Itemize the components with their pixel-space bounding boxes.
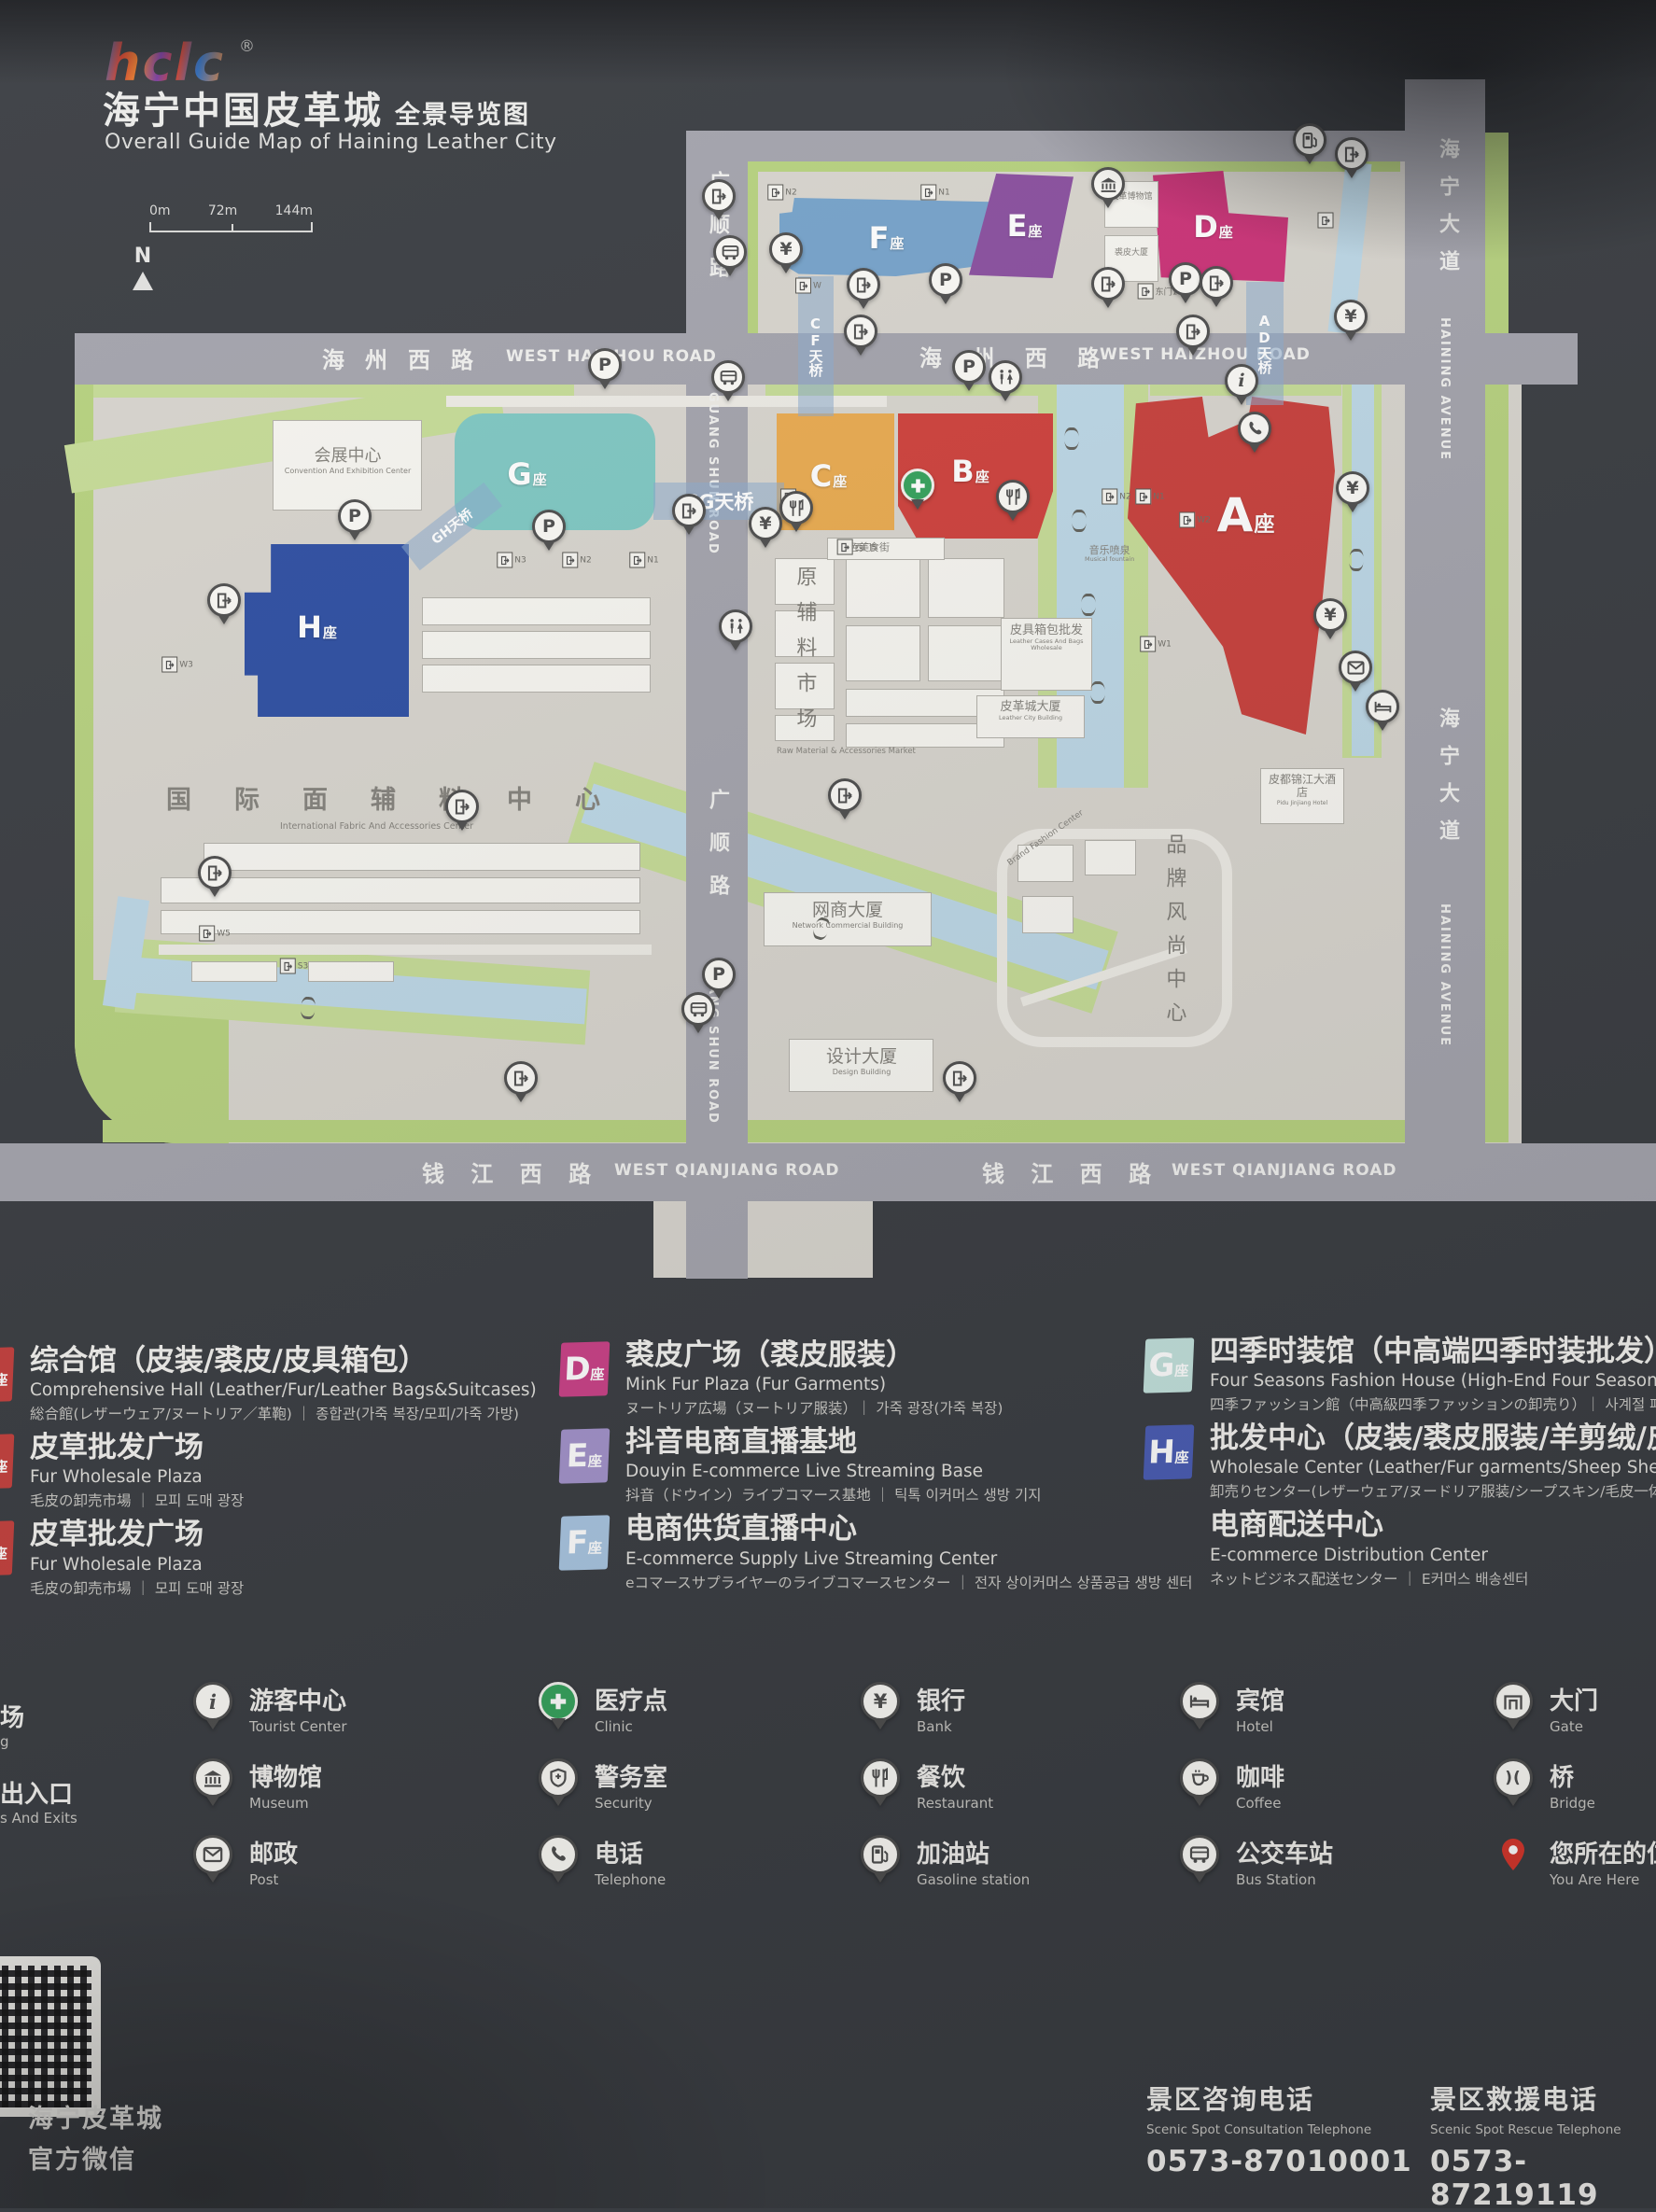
map-scale-bar: 0m 72m 144m (149, 203, 313, 232)
gate-marker: W (795, 278, 821, 294)
bus-icon (713, 235, 747, 269)
exit-icon (837, 539, 853, 555)
gate-code: W2 (1197, 515, 1211, 525)
legend-row: A座综合馆（皮装/裘皮/皮具箱包）Comprehensive Hall (Lea… (0, 1344, 549, 1423)
legend-title: 四季时装馆（中高端四季时装批发） (1210, 1335, 1656, 1369)
info-icon: i (1225, 364, 1258, 398)
facility-label-zh: 咖啡 (1236, 1758, 1284, 1793)
gate-marker: W1 (1140, 637, 1172, 652)
bridge-tick (1091, 681, 1105, 704)
medical-icon (537, 1682, 580, 1737)
rescue-phone-block: 景区救援电话 Scenic Spot Rescue Telephone 0573… (1430, 2079, 1656, 2212)
facility-label-zh: 医疗点 (595, 1682, 667, 1716)
exit-pin (1335, 137, 1368, 185)
parking-icon: P (338, 499, 372, 533)
hotel-icon (1178, 1682, 1221, 1737)
exit-pin (943, 1061, 976, 1109)
facility-label-zh: 博物馆 (249, 1758, 322, 1793)
exit-icon (1335, 137, 1368, 171)
facilities-column-3: ¥银行Bank餐饮Restaurant加油站Gasoline station (859, 1682, 1030, 1911)
label-guangshun-en-1: GUANG SHUN ROAD (706, 392, 720, 555)
facility-partial-item: 出入口s And Exits (0, 1775, 77, 1827)
bank-pin: ¥ (749, 507, 782, 554)
exit-pin (828, 778, 862, 826)
market-block (846, 558, 920, 618)
market-block (846, 625, 920, 681)
wechat-qr-code (0, 1956, 101, 2117)
wc-icon (719, 609, 752, 643)
museum-pin (1091, 167, 1125, 215)
facility-item-coffee: 咖啡Coffee (1178, 1758, 1333, 1835)
gas-pin (1293, 123, 1326, 171)
gate-marker: S3 (280, 959, 308, 974)
legend-title-jp-kr: ヌートリア広場（ヌートリア服装）｜ 가죽 광장(가죽 복장) (625, 1397, 1003, 1418)
scale-tick: 144m (275, 203, 313, 218)
white-row (422, 665, 651, 693)
registered-mark: ® (239, 37, 255, 56)
gate-code: N3 (514, 555, 526, 565)
bank-icon: ¥ (769, 232, 803, 266)
facility-item-mail: 邮政Post (191, 1835, 347, 1911)
bank-icon: ¥ (1336, 471, 1369, 505)
bank-icon: ¥ (859, 1682, 902, 1737)
label-qianjiang-left-zh: 钱 江 西 路 (422, 1155, 600, 1188)
facility-label-zh: 银行 (917, 1682, 965, 1716)
legend-badge: A座 (0, 1347, 14, 1402)
label-building-F: F座 (869, 220, 905, 256)
mail-icon (191, 1835, 234, 1890)
exit-icon (1200, 266, 1233, 300)
hotel-pin (1366, 690, 1399, 737)
gate-code: N2 (1119, 492, 1130, 501)
exit-icon (1091, 267, 1125, 301)
legend-title-en: Fur Wholesale Plaza (30, 1467, 244, 1487)
bridge-tick (1349, 549, 1364, 572)
facility-label-en: You Are Here (1550, 1871, 1656, 1888)
facility-label-en: Post (249, 1871, 298, 1888)
green-topleft (747, 161, 758, 333)
label-fur-building: 裘皮大厦 (1107, 248, 1156, 259)
gate-code: W1 (1158, 639, 1172, 649)
bridge-tick (1082, 594, 1096, 616)
consultation-phone-subtitle: Scenic Spot Consultation Telephone (1146, 2122, 1412, 2137)
facility-item-here: 您所在的位置You Are Here (1492, 1835, 1656, 1911)
label-design: 设计大厦Design Building (801, 1046, 922, 1076)
wechat-label-2: 官方微信 (28, 2139, 136, 2176)
page-title: 海宁中国皮革城全景导览图 (103, 80, 530, 134)
wc-pin (719, 609, 752, 657)
legend-title-jp-kr: 四季ファッション館（中高級四季ファッションの卸売り）｜ 사계절 패션관(중고급 … (1210, 1393, 1656, 1414)
market-block (928, 625, 1004, 681)
wc-pin (989, 360, 1022, 408)
facility-item-medical: 医疗点Clinic (537, 1682, 667, 1758)
gate-code: N1 (1153, 492, 1164, 501)
medical-pin (901, 469, 934, 516)
facility-label-en: Coffee (1236, 1795, 1284, 1812)
label-building-A: A座 (1217, 488, 1276, 542)
medical-icon (901, 469, 934, 502)
gate-marker: W5 (199, 926, 231, 942)
facility-label-en: Bus Station (1236, 1871, 1333, 1888)
fabric-stub (308, 961, 394, 982)
legend-title: 抖音电商直播基地 (625, 1425, 1041, 1460)
page-title-suffix: 全景导览图 (395, 101, 530, 130)
scale-tick: 72m (208, 203, 237, 218)
facility-label-zh: 游客中心 (249, 1682, 347, 1716)
facility-label-en: Gasoline station (917, 1871, 1030, 1888)
label-qianjiang-left-en: WEST QIANJIANG ROAD (614, 1161, 840, 1180)
facility-item-phone: 电话Telephone (537, 1835, 667, 1911)
gate-marker: N2 (1102, 489, 1130, 505)
exit-icon (1140, 637, 1156, 652)
facility-item-bus: 公交车站Bus Station (1178, 1835, 1333, 1911)
gate-code: S3 (298, 961, 308, 971)
exit-pin (198, 856, 232, 903)
gas-icon (1293, 123, 1326, 157)
exit-icon (1318, 213, 1334, 229)
exit-icon (504, 1061, 538, 1095)
gate-code: 西门5 (855, 541, 877, 553)
label-bags: 皮具箱包批发Leather Cases And Bags Wholesale (1006, 623, 1087, 652)
facility-label-zh: 宾馆 (1236, 1682, 1284, 1716)
museum-icon (1091, 167, 1125, 201)
parking-pin: P (929, 263, 962, 311)
facility-item-museum: 博物馆Museum (191, 1758, 347, 1835)
exit-pin (1091, 267, 1125, 315)
label-hotel: 皮都锦江大酒店Pidu Jinjiang Hotel (1264, 773, 1340, 806)
facility-item-hotel: 宾馆Hotel (1178, 1682, 1333, 1758)
legend-row: G座四季时装馆（中高端四季时装批发）Four Seasons Fashion H… (1144, 1335, 1656, 1414)
phone-icon (1238, 412, 1271, 445)
bus-icon (1178, 1835, 1221, 1890)
legend-badge: F座 (559, 1516, 610, 1571)
label-haining-zh-1: 海宁大道 (1432, 138, 1462, 287)
legend-row: B座皮草批发广场Fur Wholesale Plaza毛皮の卸売市場 ｜ 모피 … (0, 1431, 549, 1510)
security-icon (537, 1758, 580, 1813)
legend-row: C座皮草批发广场Fur Wholesale Plaza毛皮の卸売市場 ｜ 모피 … (0, 1518, 549, 1597)
facility-label-en: Tourist Center (249, 1718, 347, 1735)
label-qianjiang-right-zh: 钱 江 西 路 (982, 1155, 1160, 1188)
facility-item-tourist: i游客中心Tourist Center (191, 1682, 347, 1758)
rescue-phone-subtitle: Scenic Spot Rescue Telephone (1430, 2122, 1656, 2137)
label-haizhou-left-zh: 海州西路 (322, 342, 494, 374)
label-market-zh: 原辅料市场 (792, 566, 816, 743)
rescue-phone-number: 0573-87219119 (1430, 2145, 1656, 2212)
bus-pin (681, 992, 715, 1040)
bank-icon: ¥ (1334, 300, 1368, 333)
legend-title-en: Four Seasons Fashion House (High-End Fou… (1210, 1371, 1656, 1391)
parking-icon: P (952, 350, 986, 384)
facility-item-bank: ¥银行Bank (859, 1682, 1030, 1758)
parking-pin: P (338, 499, 372, 547)
gate-code: W3 (179, 660, 193, 669)
parking-icon: P (929, 263, 962, 297)
fabric-stub (191, 961, 277, 982)
label-building-G: G座 (507, 456, 547, 492)
green-bottom (103, 1120, 1438, 1142)
facilities-column-1: i游客中心Tourist Center博物馆Museum邮政Post (191, 1682, 347, 1911)
exit-pin (207, 583, 241, 631)
parking-icon: P (532, 510, 566, 543)
legend-title: 皮草批发广场 (30, 1518, 244, 1552)
phone-pin (1238, 412, 1271, 459)
exit-icon (828, 778, 862, 812)
label-cf-bridge: CF天桥 (807, 315, 826, 377)
legend-badge: C座 (0, 1521, 14, 1576)
gate-marker (1318, 213, 1334, 229)
bus-icon (711, 360, 745, 394)
legend-title: 皮草批发广场 (30, 1431, 244, 1465)
legend-row: 电商配送中心E-commerce Distribution Centerネットビ… (1144, 1508, 1656, 1588)
legend-title-en: Fur Wholesale Plaza (30, 1555, 244, 1575)
gate-code: N2 (785, 188, 796, 197)
parking-icon: P (702, 958, 736, 991)
exit-pin (844, 315, 877, 362)
exit-icon (280, 959, 296, 974)
label-guangshun-zh-2: 广顺路 (702, 789, 732, 917)
legend-badge: E座 (559, 1429, 610, 1484)
legend-title-en: Comprehensive Hall (Leather/Fur/Leather … (30, 1380, 537, 1400)
facility-label-en: Museum (249, 1795, 322, 1812)
exit-icon (1176, 315, 1210, 348)
bank-pin: ¥ (769, 232, 803, 280)
north-arrow: N (133, 245, 153, 290)
gate-marker: W3 (161, 657, 193, 673)
legend-title-jp-kr: ネットビジネス配送センター ｜ E커머스 배송센터 (1210, 1568, 1528, 1589)
legend-title-en: Wholesale Center (Leather/Fur garments/S… (1210, 1458, 1656, 1477)
parking-pin: P (1169, 262, 1202, 310)
facility-item-bridge: )(桥Bridge (1492, 1758, 1656, 1835)
label-qianjiang-right-en: WEST QIANJIANG ROAD (1172, 1161, 1397, 1180)
wechat-label-1: 海宁皮革城 (28, 2098, 163, 2135)
facility-label-zh: 电话 (595, 1835, 666, 1869)
exit-icon (1138, 284, 1154, 300)
exit-icon (943, 1061, 976, 1095)
legend-title-en: Mink Fur Plaza (Fur Garments) (625, 1375, 1003, 1394)
facility-label-en: Clinic (595, 1718, 667, 1735)
bank-icon: ¥ (1313, 598, 1347, 632)
gate-marker: N2 (767, 185, 796, 201)
exit-icon (767, 185, 783, 201)
footbridge-cf: CF天桥 (798, 276, 834, 416)
exit-pin (1200, 266, 1233, 314)
bus-icon (681, 992, 715, 1026)
facility-item-gas: 加油站Gasoline station (859, 1835, 1030, 1911)
exit-pin (1176, 315, 1210, 362)
gate-marker: N1 (629, 553, 658, 568)
gate-code: N1 (938, 188, 949, 197)
green-right-edge (1484, 133, 1509, 1142)
exit-pin (504, 1061, 538, 1109)
white-row (422, 597, 651, 625)
legend-badge: H座 (1144, 1425, 1195, 1480)
parking-pin: P (588, 348, 622, 396)
facility-label-en: Hotel (1236, 1718, 1284, 1735)
exit-icon (161, 657, 177, 673)
bridge-tick (1065, 427, 1079, 450)
museum-icon (191, 1758, 234, 1813)
rescue-phone-title: 景区救援电话 (1430, 2079, 1656, 2117)
consultation-phone-number: 0573-87010001 (1146, 2145, 1412, 2178)
legend-title-en: E-commerce Supply Live Streaming Center (625, 1549, 1193, 1569)
gate-marker: W2 (1179, 512, 1211, 528)
bank-pin: ¥ (1334, 300, 1368, 347)
restaurant-icon (859, 1758, 902, 1813)
facility-label-zh: 您所在的位置 (1550, 1835, 1656, 1869)
gas-icon (859, 1835, 902, 1890)
bank-icon: ¥ (749, 507, 782, 540)
gate-marker: 西门5 (837, 539, 877, 555)
exit-icon (207, 583, 241, 617)
coffee-icon (1178, 1758, 1221, 1813)
facility-label-en: Security (595, 1795, 667, 1812)
label-haining-zh-2: 海宁大道 (1432, 707, 1462, 857)
legend-title: 电商配送中心 (1210, 1508, 1528, 1543)
facility-label-en: Telephone (595, 1871, 666, 1888)
legend-title: 电商供货直播中心 (625, 1512, 1193, 1547)
legend-column-1: A座综合馆（皮装/裘皮/皮具箱包）Comprehensive Hall (Lea… (0, 1344, 549, 1605)
restaurant-pin (779, 491, 813, 539)
facility-label-zh: 桥 (1550, 1758, 1595, 1793)
exit-icon (1102, 489, 1117, 505)
gate-icon (1492, 1682, 1535, 1737)
exit-icon (920, 185, 936, 201)
facility-label-en: Restaurant (917, 1795, 993, 1812)
label-brand-zh: 品牌风尚中心 (1161, 833, 1186, 1035)
restaurant-icon (779, 491, 813, 525)
legend-title: 裘皮广场（裘皮服装） (625, 1338, 1003, 1373)
label-lcb: 皮革城大厦Leather City Building (982, 700, 1079, 721)
brand-block (1085, 840, 1136, 875)
hotel-icon (1366, 690, 1399, 723)
consultation-phone-title: 景区咨询电话 (1146, 2079, 1412, 2117)
facility-item-security: 警务室Security (537, 1758, 667, 1835)
bank-pin: ¥ (1336, 471, 1369, 519)
bus-pin (713, 235, 747, 283)
white-row (422, 631, 651, 659)
parking-icon: P (588, 348, 622, 382)
facility-label-zh: 加油站 (917, 1835, 1030, 1869)
parking-pin: P (952, 350, 986, 398)
restaurant-pin (996, 480, 1030, 527)
phone-icon (537, 1835, 580, 1890)
exit-pin (702, 179, 736, 227)
gate-code: N1 (647, 555, 658, 565)
exit-icon (844, 315, 877, 348)
label-haining-en-2: HAINING AVENUE (1438, 903, 1452, 1047)
legend-badge: B座 (0, 1435, 14, 1490)
legend-badge: D座 (559, 1341, 610, 1396)
exit-icon (198, 856, 232, 889)
exit-icon (629, 553, 645, 568)
facilities-column-4: 宾馆Hotel咖啡Coffee公交车站Bus Station (1178, 1682, 1333, 1911)
facility-item-gate: 大门Gate (1492, 1682, 1656, 1758)
gate-code: W (813, 281, 821, 290)
facility-label-en: Bank (917, 1718, 965, 1735)
legend-title-jp-kr: 毛皮の卸売市場 ｜ 모피 도매 광장 (30, 1490, 244, 1510)
facility-item-restaurant: 餐饮Restaurant (859, 1758, 1030, 1835)
exit-icon (847, 268, 880, 301)
facility-label-zh: 餐饮 (917, 1758, 993, 1793)
fabric-bar (161, 910, 640, 934)
consultation-phone-block: 景区咨询电话 Scenic Spot Consultation Telephon… (1146, 2079, 1412, 2178)
fabric-bar (161, 877, 640, 903)
legend-title-jp-kr: 抖音（ドウイン）ライブコマース基地 ｜ 틱톡 이커머스 생방 기지 (625, 1484, 1041, 1505)
brand-block (1022, 896, 1074, 933)
exit-pin (445, 790, 479, 837)
here-icon (1492, 1835, 1535, 1874)
legend-title-en: E-commerce Distribution Center (1210, 1546, 1528, 1565)
facility-label-zh: 大门 (1550, 1682, 1598, 1716)
legend-title-jp-kr: 卸売りセンター(レザーウェア/ヌードリア服装/シープスキン/毛皮一体) ｜ 도매… (1210, 1480, 1656, 1501)
wc-icon (989, 360, 1022, 394)
exit-icon (199, 926, 215, 942)
facility-label-en: Gate (1550, 1718, 1598, 1735)
scale-tick: 0m (149, 203, 171, 218)
label-building-C: C座 (810, 458, 849, 494)
facilities-column-5: 大门Gate)(桥Bridge您所在的位置You Are Here (1492, 1682, 1656, 1911)
label-fabric-zh: 国际面辅料中心 (166, 786, 643, 816)
legend-column-3: G座四季时装馆（中高端四季时装批发）Four Seasons Fashion H… (1144, 1335, 1656, 1596)
exit-icon (795, 278, 811, 294)
label-market-en: Raw Material & Accessories Market (777, 747, 1010, 756)
page-title-en: Overall Guide Map of Haining Leather Cit… (105, 131, 557, 154)
legend-title: 综合馆（皮装/裘皮/皮具箱包） (30, 1344, 537, 1379)
exit-icon (1179, 512, 1195, 528)
legend-title-jp-kr: eコマースサプライヤーのライブコマースセンター ｜ 전자 상이커머스 상품공급 … (625, 1572, 1193, 1592)
facilities-column-2: 医疗点Clinic警务室Security电话Telephone (537, 1682, 667, 1911)
exit-pin (847, 268, 880, 315)
tourist-icon: i (191, 1682, 234, 1737)
market-block (928, 558, 1004, 618)
label-building-B: B座 (951, 454, 989, 489)
legend-title-jp-kr: 毛皮の卸売市場 ｜ 모피 도매 광장 (30, 1577, 244, 1598)
label-haining-en-1: HAINING AVENUE (1438, 317, 1452, 461)
gate-marker: N3 (497, 553, 526, 568)
bridge-tick (1073, 510, 1087, 532)
label-convention-center: 会展中心 Convention And Exhibition Center (280, 446, 415, 475)
bridge-icon: )( (1492, 1758, 1535, 1813)
facility-label-zh: 警务室 (595, 1758, 667, 1793)
exit-icon (497, 553, 512, 568)
legend-title-en: Douyin E-commerce Live Streaming Base (625, 1462, 1041, 1481)
legend-row: H座批发中心（皮装/裘皮服装/羊剪绒/皮毛一体）Wholesale Center… (1144, 1421, 1656, 1501)
mail-icon (1339, 651, 1372, 684)
gate-code: W5 (217, 929, 231, 938)
bank-pin: ¥ (1313, 598, 1347, 646)
legend-title-jp-kr: 総合館(レザーウェア/ヌートリア／革鞄) ｜ 종합관(가죽 복장/모피/가죽 가… (30, 1403, 537, 1423)
label-building-D: D座 (1193, 209, 1234, 245)
label-building-H: H座 (297, 609, 338, 645)
fabric-bar (203, 843, 640, 871)
gate-marker: N1 (920, 185, 949, 201)
facility-label-zh: 邮政 (249, 1835, 298, 1869)
gate-marker: N2 (562, 553, 591, 568)
parking-pin: P (532, 510, 566, 557)
legend-title: 批发中心（皮装/裘皮服装/羊剪绒/皮毛一体） (1210, 1421, 1656, 1456)
exit-icon (445, 790, 479, 823)
exit-icon (702, 179, 736, 213)
facility-label-zh: 公交车站 (1236, 1835, 1333, 1869)
gate-code: N2 (580, 555, 591, 565)
info-pin: i (1225, 364, 1258, 412)
label-ecom: 网商大厦Network Commercial Building (777, 900, 919, 930)
legend-row: F座电商供货直播中心E-commerce Supply Live Streami… (560, 1512, 1144, 1591)
legend-badge: G座 (1144, 1337, 1195, 1393)
facility-label-en: Bridge (1550, 1795, 1595, 1812)
parking-icon: P (1169, 262, 1202, 296)
exit-pin (672, 494, 706, 541)
